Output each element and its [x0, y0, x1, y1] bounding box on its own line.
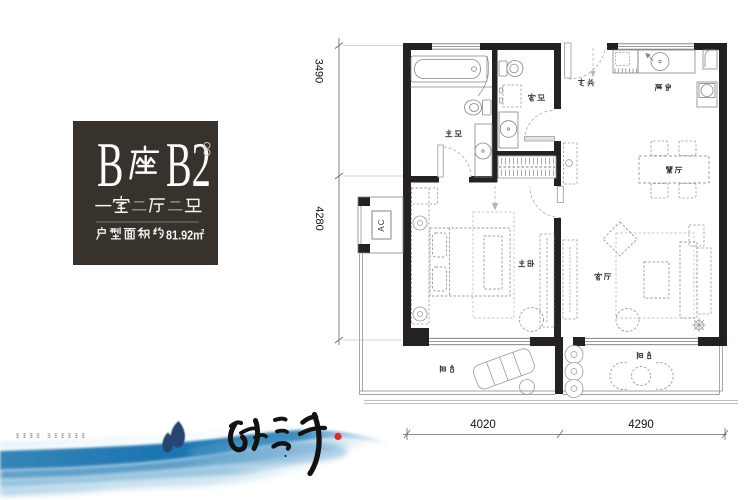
- svg-text:2: 2: [201, 229, 205, 237]
- svg-text:4280: 4280: [313, 206, 325, 230]
- svg-text:3490: 3490: [313, 59, 325, 83]
- svg-text:AC: AC: [377, 218, 386, 231]
- svg-text:4020: 4020: [470, 419, 496, 431]
- svg-text:4290: 4290: [628, 419, 654, 431]
- svg-text:B: B: [97, 130, 123, 201]
- svg-text:B2: B2: [166, 130, 211, 200]
- svg-text:81.92m: 81.92m: [166, 228, 203, 243]
